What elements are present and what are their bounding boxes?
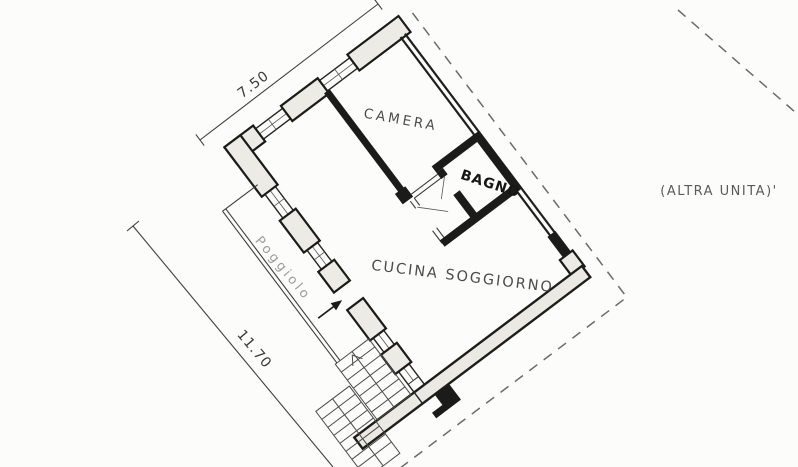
dimension-length-label: 11.70	[233, 327, 274, 372]
vestibule-walls	[407, 174, 472, 243]
entry-arrow	[315, 297, 344, 322]
wall-pier	[347, 298, 386, 340]
wall-pier	[280, 209, 320, 253]
room-label-camera: CAMERA	[362, 106, 439, 135]
window-opening	[319, 58, 357, 91]
door-leaf	[417, 194, 448, 225]
wall-pier	[281, 78, 329, 121]
adjacent-unit-label: (ALTRA UNITA)'	[660, 184, 777, 199]
floor-plan-drawing: 7.50 11.70 CAMERA BAGNO CUCINA SOGGIORNO…	[0, 0, 798, 467]
dimension-width-label: 7.50	[235, 68, 273, 102]
room-label-cucina-soggiorno: CUCINA SOGGIORNO	[370, 258, 554, 296]
door-leaf	[432, 177, 454, 199]
wall-pier	[381, 343, 411, 374]
dashed-boundary-far	[678, 10, 795, 112]
floor-plan-page: 7.50 11.70 CAMERA BAGNO CUCINA SOGGIORNO…	[0, 0, 798, 467]
wall-pier	[318, 260, 350, 293]
wall-pier	[347, 16, 410, 70]
room-label-bagno: BAGNO	[458, 167, 522, 201]
dimension-line-length: 11.70	[127, 221, 333, 467]
building	[156, 8, 627, 467]
